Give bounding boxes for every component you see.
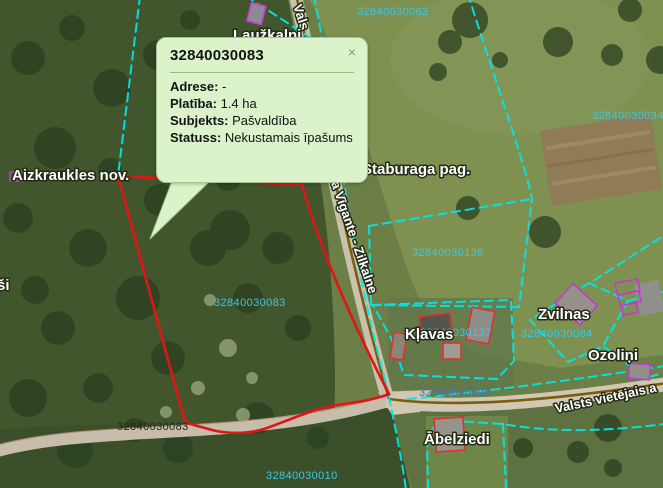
parcel-number-136: 32840030136 <box>412 247 484 259</box>
label-klavas: Kļavas <box>405 326 453 343</box>
parcel-number-099: 32840030099 <box>419 387 491 399</box>
popup-field-platiba: Platība: 1.4 ha <box>170 96 354 113</box>
parcel-number-010: 32840030010 <box>266 470 338 482</box>
label-ozolini: Ozoliņi <box>588 347 638 364</box>
parcel-number-084: 32840030084 <box>521 328 593 340</box>
popup-divider <box>170 72 354 73</box>
label-aizkraukles-nov: Aizkraukles nov. <box>12 167 129 184</box>
parcel-number-083: 32840030083 <box>214 297 286 309</box>
popup-field-subjekts: Subjekts: Pašvaldība <box>170 113 354 130</box>
parcel-info-popup: 32840030083 × Adrese: - Platība: 1.4 ha … <box>156 37 368 183</box>
parcel-number-034: 32840030034 <box>592 110 663 122</box>
parcel-number-083-road: 32840030083 <box>117 421 189 433</box>
label-partial-left-edge: ši <box>0 277 10 294</box>
label-abelziedi: Ābelziedi <box>424 431 490 448</box>
parcel-number-062: 32840030062 <box>357 6 429 18</box>
popup-title: 32840030083 <box>170 47 264 64</box>
label-staburaga-pag: Staburaga pag. <box>362 161 470 178</box>
popup-field-statuss: Statuss: Nekustamais īpašums <box>170 130 354 147</box>
popup-tail <box>146 181 226 243</box>
map-viewport: 32840030062 32840030034 32840030136 3284… <box>0 0 663 488</box>
close-icon[interactable]: × <box>348 45 356 59</box>
popup-field-adrese: Adrese: - <box>170 79 354 96</box>
label-zvilnas: Zvilnas <box>538 306 590 323</box>
